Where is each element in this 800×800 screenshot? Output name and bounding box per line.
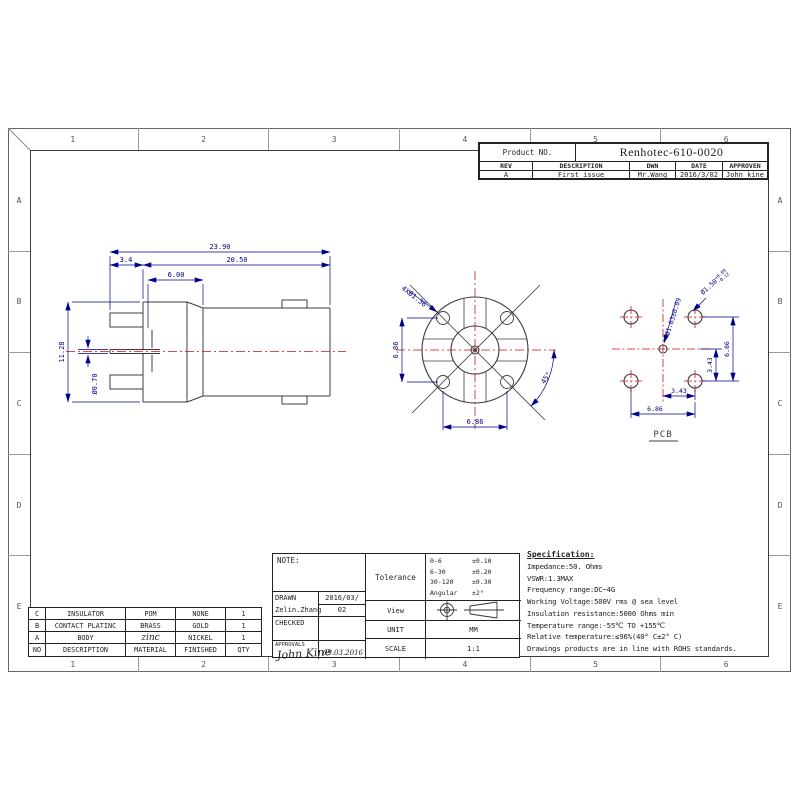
tolerance-label: Tolerance — [366, 554, 426, 601]
material-cell: NONE — [176, 608, 226, 620]
dwn-value: Mr.Wang — [630, 170, 676, 179]
material-cell: BODY — [46, 632, 126, 644]
drawn-label: DRAWN — [275, 594, 296, 602]
material-cell: INSULATOR — [46, 608, 126, 620]
specification-block: Specification: Impedance:50. Ohms VSWR:1… — [527, 550, 769, 655]
rev-header: REV — [480, 161, 533, 170]
material-cell: B — [29, 620, 46, 632]
zone-col-label: 2 — [139, 128, 270, 150]
zone-row-label: E — [8, 556, 30, 657]
tolerance-values: 0-6 ±0.10 6-30 ±0.20 30-120 ±0.30 Angula… — [426, 554, 521, 601]
tolerance-value: ±0.30 — [472, 578, 492, 586]
spec-line: Insulation resistance:5000 Ohms min — [527, 608, 769, 620]
drawn-date-cell: 2016/03/ 02 — [319, 592, 366, 617]
title-block-product-row: Product NO. Renhotec-610-0020 — [480, 144, 767, 162]
scale-label: SCALE — [366, 639, 426, 659]
material-cell: POM — [126, 608, 176, 620]
material-cell: 1 — [226, 632, 261, 644]
drawn-name: Zelin.Zhang — [275, 606, 321, 614]
material-cell: 1 — [226, 620, 261, 632]
product-no-value: Renhotec-610-0020 — [576, 144, 767, 161]
spec-line: Temperature range:-55℃ TO +155℃ — [527, 620, 769, 632]
tolerance-range: 30-120 — [430, 578, 472, 586]
material-cell: BRASS — [126, 620, 176, 632]
spec-line: Relative temperature:≤96%(40° C±2° C) — [527, 631, 769, 643]
drawn-date-line1: 2016/03/ — [319, 592, 365, 605]
material-cell: A — [29, 632, 46, 644]
zone-strip-left: A B C D E — [8, 150, 30, 657]
tolerance-row: 6-30 ±0.20 — [430, 568, 517, 576]
title-block: Product NO. Renhotec-610-0020 REV DESCRI… — [478, 142, 769, 180]
material-header-cell: DESCRIPTION — [46, 644, 126, 656]
checked-date-cell — [319, 617, 366, 641]
material-header-cell: MATERIAL — [126, 644, 176, 656]
checked-cell: CHECKED — [273, 617, 319, 641]
title-block-data-row: A First issue Mr.Wang 2016/3/02 John kin… — [480, 170, 767, 179]
scale-value: 1:1 — [426, 639, 521, 659]
drawing-page: { "sheet": { "zone_cols": ["1","2","3","… — [0, 0, 800, 800]
material-cell: CONTACT PLATINC — [46, 620, 126, 632]
material-cell: NICKEL — [176, 632, 226, 644]
date-value: 2016/3/02 — [676, 170, 723, 179]
dwn-header: DWN — [630, 161, 676, 170]
zone-row-label: E — [769, 556, 791, 657]
zone-col-label: 6 — [661, 657, 791, 672]
zone-col-label: 1 — [8, 657, 139, 672]
drawn-date-line2: 02 — [319, 605, 365, 617]
material-cell: 1 — [226, 608, 261, 620]
material-header-cell: FINISHED — [176, 644, 226, 656]
note-cell: NOTE: — [273, 554, 366, 592]
zone-row-label: B — [8, 252, 30, 354]
spec-line: Drawings products are in line with ROHS … — [527, 643, 769, 655]
tolerance-row: 30-120 ±0.30 — [430, 578, 517, 586]
zone-col-label: 5 — [531, 657, 662, 672]
description-header: DESCRIPTION — [533, 161, 630, 170]
tolerance-value: ±2° — [472, 589, 484, 597]
approvals-cell: APPROVALS John Kine — [273, 641, 319, 659]
material-cell: zinc — [126, 632, 176, 644]
zone-row-label: D — [8, 455, 30, 557]
tolerance-value: ±0.20 — [472, 568, 492, 576]
zone-col-label: 1 — [8, 128, 139, 150]
date-header: DATE — [676, 161, 723, 170]
zone-row-label: B — [769, 252, 791, 354]
zone-row-label: C — [769, 353, 791, 455]
view-projection-symbols — [426, 601, 521, 621]
tolerance-row: 0-6 ±0.10 — [430, 557, 517, 565]
zone-row-label: A — [769, 150, 791, 252]
spec-line: VSWR:1.3MAX — [527, 573, 769, 585]
spec-line: Frequency range:DC~4G — [527, 584, 769, 596]
rev-value: A — [480, 170, 533, 179]
materials-table: C INSULATOR POM NONE 1 B CONTACT PLATINC… — [28, 607, 262, 657]
tolerance-range: 6-30 — [430, 568, 472, 576]
unit-label: UNIT — [366, 621, 426, 639]
approven-header: APPROVEN — [723, 161, 767, 170]
tolerance-value: ±0.10 — [472, 557, 492, 565]
zone-strip-right: A B C D E — [769, 150, 791, 657]
spec-line: Impedance:50. Ohms — [527, 561, 769, 573]
zone-col-label: 3 — [269, 128, 400, 150]
approven-value: John kine — [723, 170, 767, 179]
specification-title: Specification: — [527, 550, 769, 559]
zone-strip-bottom: 1 2 3 4 5 6 — [8, 657, 791, 672]
unit-value: MM — [426, 621, 521, 639]
material-header-cell: QTY — [226, 644, 261, 656]
view-label: View — [366, 601, 426, 621]
zone-row-label: A — [8, 150, 30, 252]
zone-row-label: C — [8, 353, 30, 455]
zone-col-label: 4 — [400, 657, 531, 672]
spec-line: Working Voltage:500V rms @ sea level — [527, 596, 769, 608]
material-cell: GOLD — [176, 620, 226, 632]
tolerance-row: Angular ±2° — [430, 589, 517, 597]
tolerance-range: Angular — [430, 589, 472, 597]
zone-col-label: 2 — [139, 657, 270, 672]
product-no-label: Product NO. — [480, 144, 576, 161]
tolerance-range: 0-6 — [430, 557, 472, 565]
material-header-cell: NO — [29, 644, 46, 656]
drawn-cell: DRAWN Zelin.Zhang — [273, 592, 319, 617]
info-table: NOTE: DRAWN Zelin.Zhang 2016/03/ 02 CHEC… — [272, 553, 520, 658]
zone-row-label: D — [769, 455, 791, 557]
material-cell: C — [29, 608, 46, 620]
description-value: First issue — [533, 170, 630, 179]
